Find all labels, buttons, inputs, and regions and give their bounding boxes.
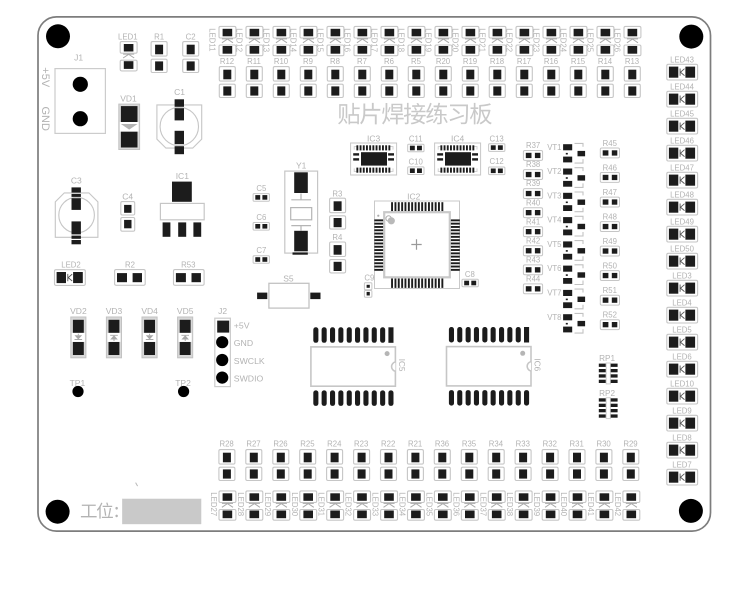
svg-text:R17: R17 (517, 57, 531, 66)
svg-text:LED20: LED20 (451, 28, 460, 53)
svg-text:LED27: LED27 (209, 492, 218, 516)
svg-text:R37: R37 (526, 141, 540, 150)
svg-text:VT7: VT7 (547, 289, 561, 298)
svg-text:LED22: LED22 (505, 28, 514, 52)
svg-text:R49: R49 (603, 237, 617, 246)
svg-text:LED30: LED30 (290, 492, 299, 517)
svg-text:LED21: LED21 (478, 28, 487, 52)
svg-text:R7: R7 (357, 57, 367, 66)
svg-text:R24: R24 (327, 440, 342, 449)
svg-text:VT8: VT8 (547, 313, 561, 322)
svg-text:R20: R20 (436, 57, 451, 66)
svg-text:VT2: VT2 (547, 167, 561, 176)
svg-text:C8: C8 (465, 270, 475, 279)
svg-text:R41: R41 (526, 217, 540, 226)
svg-text:R13: R13 (625, 57, 639, 66)
svg-text:R19: R19 (463, 57, 477, 66)
svg-text:R25: R25 (300, 440, 315, 449)
svg-text:R18: R18 (490, 57, 504, 66)
svg-text:R35: R35 (462, 440, 477, 449)
svg-text:R27: R27 (246, 440, 260, 449)
svg-text:R28: R28 (219, 440, 233, 449)
svg-text:R12: R12 (220, 57, 234, 66)
svg-text:LED1: LED1 (118, 32, 138, 41)
svg-text:RP1: RP1 (599, 354, 615, 363)
svg-text:C9: C9 (364, 274, 374, 283)
svg-text:VT6: VT6 (547, 264, 561, 273)
svg-text:IC6: IC6 (532, 358, 541, 371)
svg-text:J2: J2 (218, 306, 227, 316)
svg-text:R32: R32 (543, 440, 557, 449)
svg-text:IC1: IC1 (176, 171, 190, 181)
svg-text:C4: C4 (122, 192, 133, 202)
svg-text:IC3: IC3 (367, 133, 381, 143)
svg-text:VT4: VT4 (547, 216, 562, 225)
svg-text:R45: R45 (603, 139, 618, 148)
svg-text:C7: C7 (256, 246, 266, 255)
svg-text:LED45: LED45 (670, 110, 695, 119)
svg-text:R11: R11 (247, 57, 261, 66)
svg-text:C3: C3 (71, 176, 82, 186)
svg-text:C1: C1 (174, 87, 185, 97)
svg-text:R15: R15 (571, 57, 586, 66)
svg-text:R33: R33 (516, 440, 530, 449)
svg-text:VT1: VT1 (547, 143, 561, 152)
svg-text:R31: R31 (570, 440, 584, 449)
svg-text:LED41: LED41 (586, 492, 595, 516)
svg-text:LED31: LED31 (317, 492, 326, 516)
svg-text:LED7: LED7 (672, 461, 692, 470)
svg-text:C10: C10 (409, 158, 424, 167)
svg-text:LED8: LED8 (672, 434, 692, 443)
svg-text:VD5: VD5 (177, 306, 194, 316)
svg-text:LED19: LED19 (424, 28, 433, 52)
svg-text:R46: R46 (603, 164, 617, 173)
svg-text:LED40: LED40 (559, 492, 568, 517)
svg-text:R39: R39 (526, 179, 540, 188)
svg-text:R50: R50 (603, 262, 618, 271)
svg-text:LED50: LED50 (670, 245, 695, 254)
svg-text:R43: R43 (526, 256, 540, 265)
svg-text:R1: R1 (154, 32, 164, 41)
svg-text:LED44: LED44 (670, 83, 695, 92)
svg-text:C6: C6 (256, 213, 266, 222)
svg-text:R23: R23 (354, 440, 368, 449)
svg-text:R9: R9 (303, 57, 313, 66)
svg-text:LED3: LED3 (672, 272, 692, 281)
svg-text:LED4: LED4 (672, 299, 692, 308)
svg-text:R6: R6 (384, 57, 394, 66)
svg-text:VD4: VD4 (141, 306, 158, 316)
svg-text:LED43: LED43 (670, 56, 694, 65)
svg-text:LED48: LED48 (670, 191, 694, 200)
svg-text:R52: R52 (603, 311, 617, 320)
svg-text:R29: R29 (623, 440, 637, 449)
svg-text:LED37: LED37 (478, 492, 487, 516)
svg-text:GND: GND (234, 338, 253, 348)
svg-text:R8: R8 (330, 57, 340, 66)
svg-text:LED2: LED2 (61, 261, 81, 270)
svg-text:LED46: LED46 (670, 137, 694, 146)
svg-text:R4: R4 (332, 233, 343, 242)
svg-text:R48: R48 (603, 213, 617, 222)
svg-text:S5: S5 (283, 273, 294, 283)
svg-text:IC2: IC2 (407, 191, 421, 201)
svg-text:LED10: LED10 (670, 380, 695, 389)
svg-text:R10: R10 (274, 57, 289, 66)
svg-text:VD3: VD3 (106, 306, 123, 316)
svg-text:R53: R53 (181, 261, 195, 270)
svg-text:R26: R26 (273, 440, 287, 449)
svg-text:LED14: LED14 (289, 28, 298, 53)
svg-text:R14: R14 (598, 57, 613, 66)
svg-text:LED5: LED5 (672, 326, 692, 335)
svg-text:+5V: +5V (39, 67, 51, 88)
svg-text:R44: R44 (526, 275, 541, 284)
svg-text:C5: C5 (256, 184, 267, 193)
svg-text:VT5: VT5 (547, 240, 562, 249)
svg-text:LED34: LED34 (398, 492, 407, 517)
svg-text:LED38: LED38 (505, 492, 514, 516)
svg-text:LED36: LED36 (451, 492, 460, 516)
svg-text:IC4: IC4 (451, 133, 465, 143)
svg-text:R47: R47 (603, 188, 617, 197)
svg-text:R38: R38 (526, 160, 540, 169)
svg-text:LED12: LED12 (235, 28, 244, 52)
svg-text:R3: R3 (332, 189, 342, 198)
svg-text:R40: R40 (526, 198, 541, 207)
svg-text:LED23: LED23 (532, 28, 541, 52)
svg-text:C12: C12 (489, 157, 503, 166)
svg-text:C13: C13 (489, 134, 503, 143)
svg-text:LED26: LED26 (613, 28, 622, 52)
svg-text:R30: R30 (596, 440, 611, 449)
svg-text:VD2: VD2 (70, 306, 87, 316)
svg-text:LED13: LED13 (262, 28, 271, 52)
svg-text:LED47: LED47 (670, 164, 694, 173)
svg-text:SWCLK: SWCLK (234, 356, 265, 366)
svg-text:R5: R5 (411, 57, 422, 66)
svg-text:LED42: LED42 (613, 492, 622, 516)
svg-text:LED25: LED25 (586, 28, 595, 53)
svg-text:LED6: LED6 (672, 353, 692, 362)
svg-text:R51: R51 (603, 286, 617, 295)
svg-text:VD1: VD1 (120, 94, 137, 104)
svg-text:LED33: LED33 (371, 492, 380, 516)
svg-text:LED28: LED28 (236, 492, 245, 516)
svg-text:R21: R21 (408, 440, 422, 449)
svg-text:LED49: LED49 (670, 218, 694, 227)
svg-text:C2: C2 (186, 32, 196, 41)
svg-text:LED17: LED17 (370, 28, 379, 52)
svg-text:LED32: LED32 (344, 492, 353, 516)
svg-text:LED24: LED24 (559, 28, 568, 53)
svg-text:R2: R2 (125, 261, 135, 270)
svg-text:RP2: RP2 (599, 389, 615, 398)
svg-text:R16: R16 (544, 57, 558, 66)
svg-text:R36: R36 (435, 440, 449, 449)
svg-text:LED35: LED35 (424, 492, 433, 517)
svg-text:LED9: LED9 (672, 407, 692, 416)
svg-text:LED15: LED15 (316, 28, 325, 53)
svg-text:LED39: LED39 (532, 492, 541, 516)
svg-text:J1: J1 (74, 53, 83, 63)
svg-text:LED16: LED16 (343, 28, 352, 52)
svg-text:R22: R22 (381, 440, 395, 449)
svg-text:Y1: Y1 (296, 161, 307, 171)
svg-text:R34: R34 (489, 440, 504, 449)
svg-text:LED11: LED11 (208, 28, 217, 51)
svg-text:SWDIO: SWDIO (234, 374, 264, 384)
svg-text:+5V: +5V (234, 320, 250, 330)
svg-text:GND: GND (39, 107, 51, 132)
svg-text:LED29: LED29 (263, 492, 272, 516)
svg-text:C11: C11 (409, 135, 423, 144)
svg-text:LED18: LED18 (397, 28, 406, 52)
svg-text:VT3: VT3 (547, 191, 561, 200)
svg-text:IC5: IC5 (397, 359, 406, 372)
svg-text:R42: R42 (526, 236, 540, 245)
